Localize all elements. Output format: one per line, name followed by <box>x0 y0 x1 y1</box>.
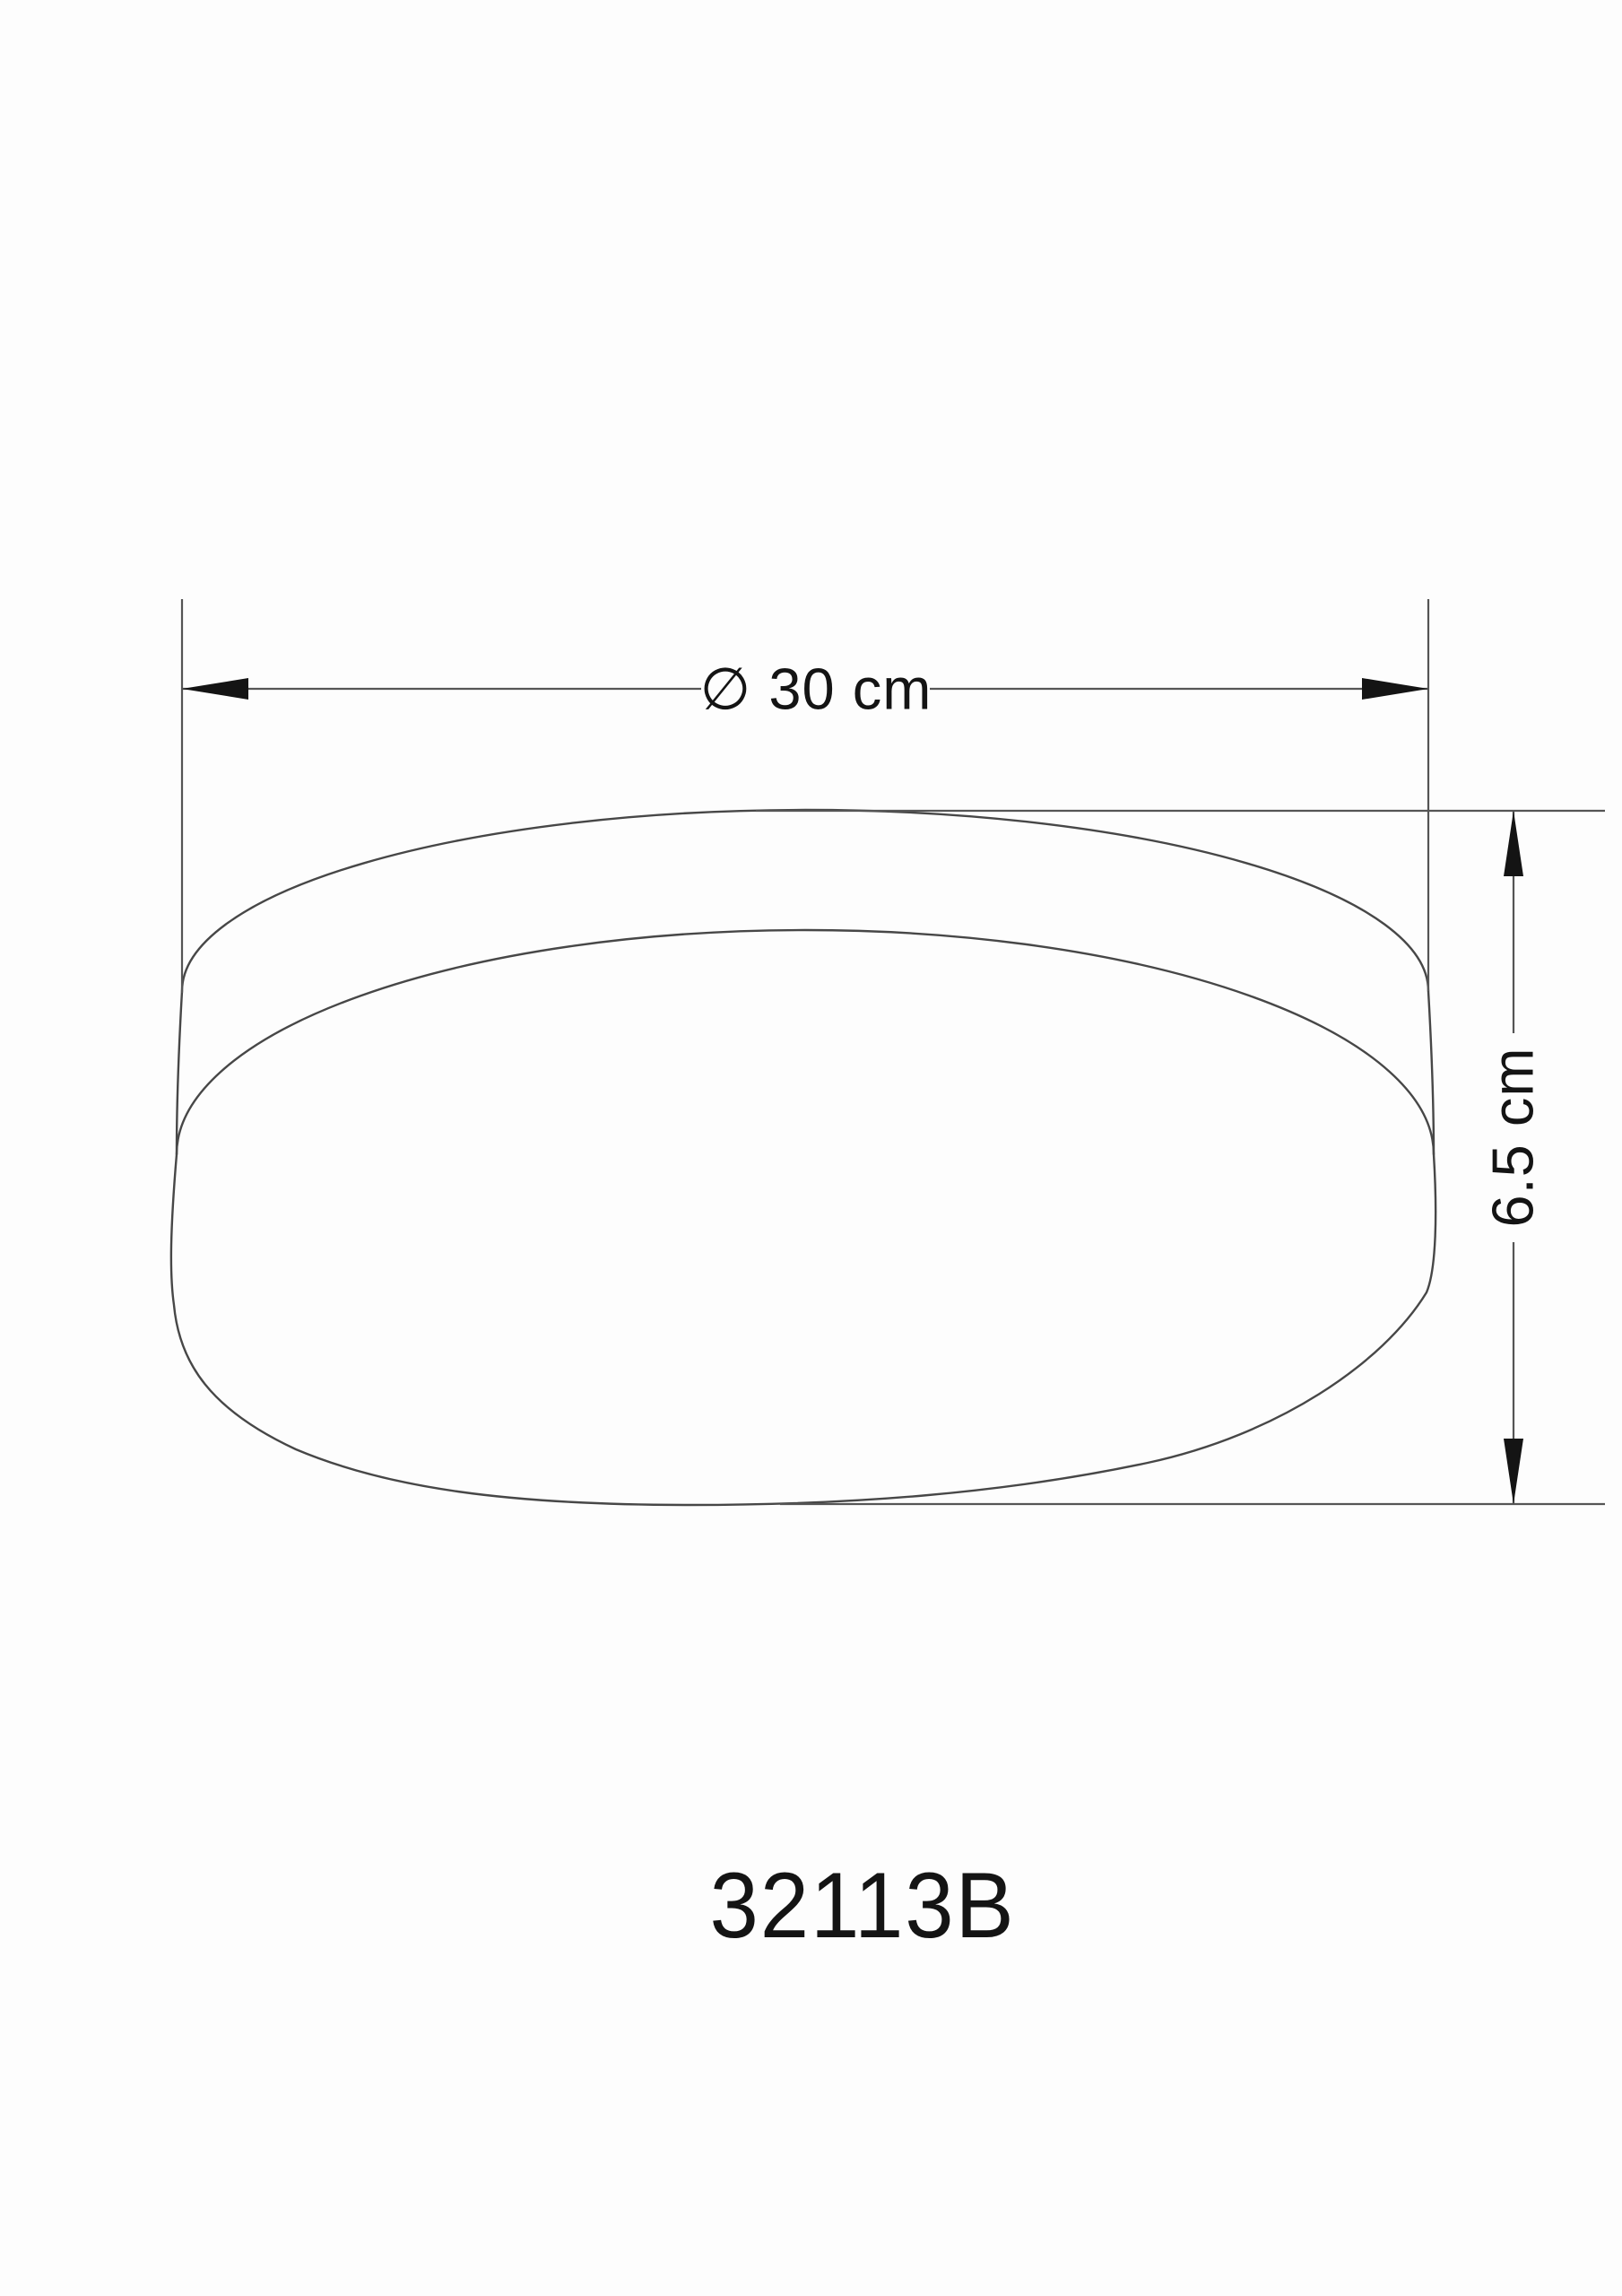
height-dimension-label: 6.5 cm <box>1484 1047 1542 1227</box>
height-arrow-up-icon <box>1504 811 1523 876</box>
lamp-outline-group <box>171 810 1436 1505</box>
lamp-top-rim-arc <box>182 810 1428 991</box>
lamp-seam-arc <box>177 930 1434 1154</box>
model-number-label: 32113B <box>709 1859 1015 1952</box>
height-dimension-group <box>756 811 1605 1504</box>
height-arrow-down-icon <box>1504 1439 1523 1504</box>
diameter-dimension-label: ∅ 30 cm <box>700 660 932 718</box>
lamp-diffuser-outline <box>171 1154 1436 1505</box>
diameter-arrow-left-icon <box>182 678 248 700</box>
technical-drawing-page: ∅ 30 cm 6.5 cm 32113B <box>0 0 1622 2296</box>
diameter-arrow-right-icon <box>1362 678 1428 700</box>
